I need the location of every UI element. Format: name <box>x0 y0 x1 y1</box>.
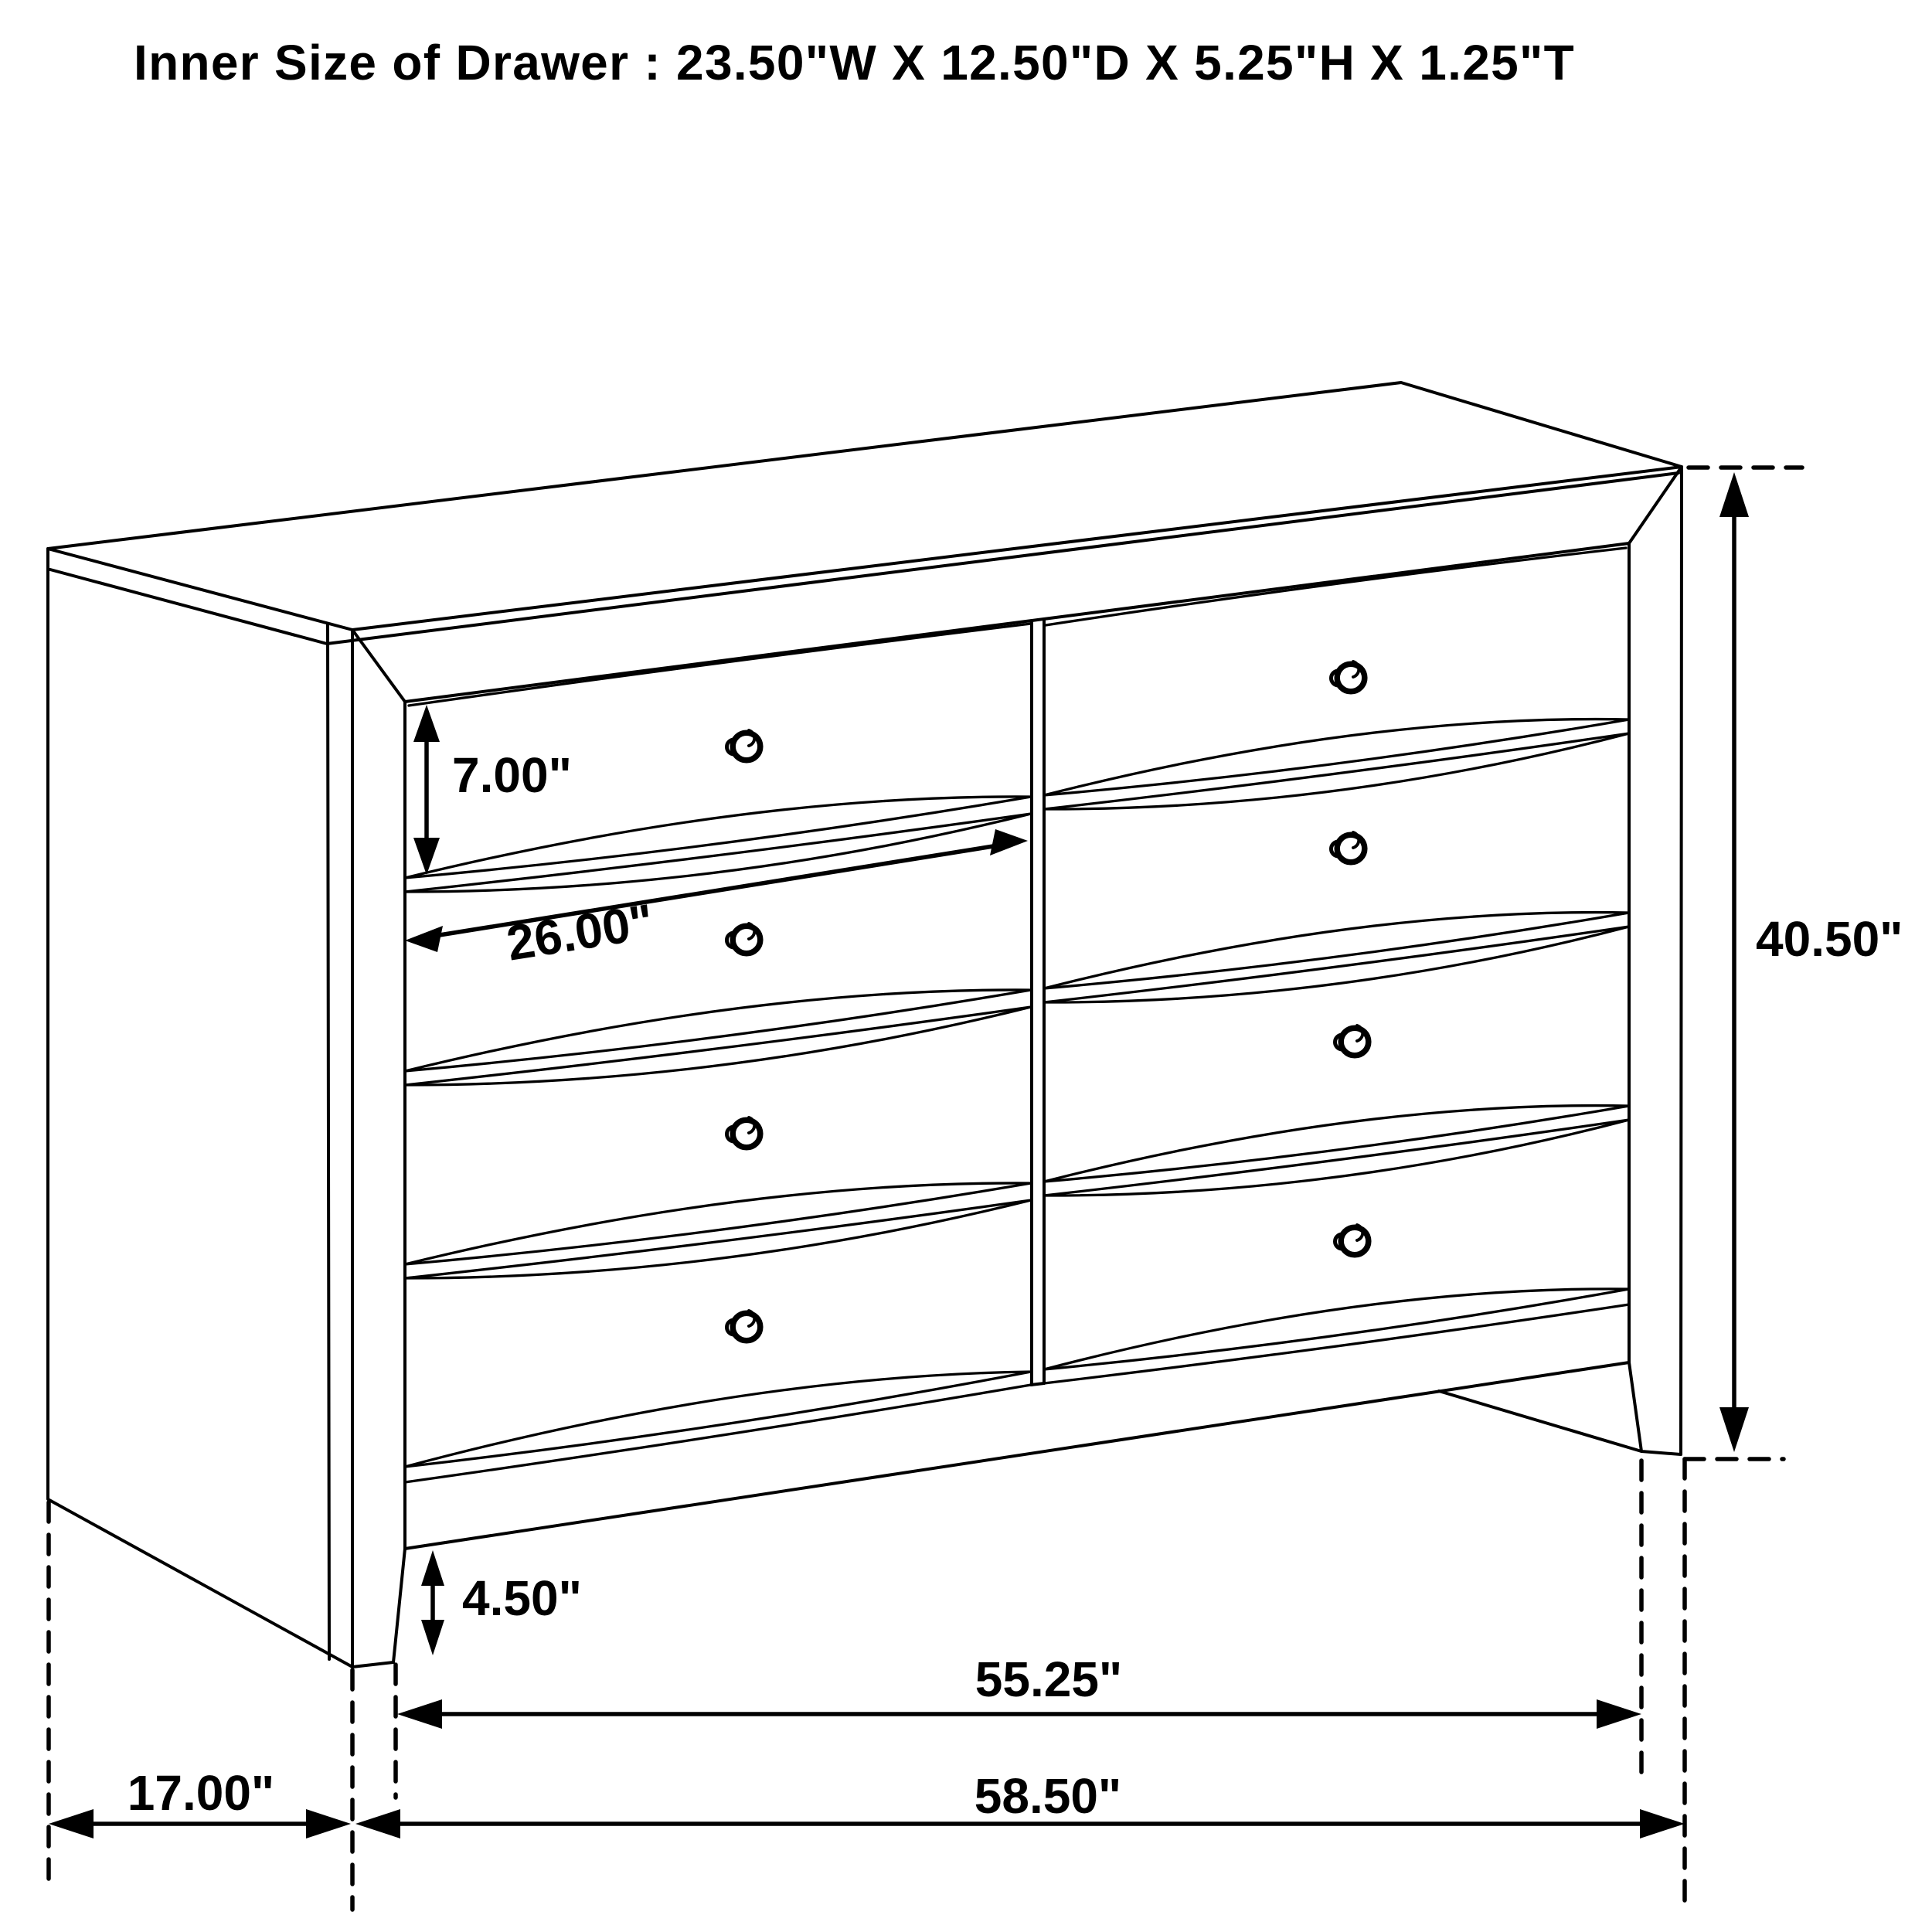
svg-text:Inner Size of Drawer : 23.50"W: Inner Size of Drawer : 23.50"W X 12.50"D… <box>134 35 1575 90</box>
svg-text:55.25": 55.25" <box>975 1651 1123 1707</box>
svg-text:26.00": 26.00" <box>503 893 657 971</box>
svg-text:17.00": 17.00" <box>128 1765 275 1821</box>
svg-text:7.00": 7.00" <box>452 747 572 803</box>
svg-text:40.50": 40.50" <box>1756 911 1903 967</box>
svg-text:58.50": 58.50" <box>975 1768 1122 1824</box>
svg-text:4.50": 4.50" <box>462 1570 582 1626</box>
